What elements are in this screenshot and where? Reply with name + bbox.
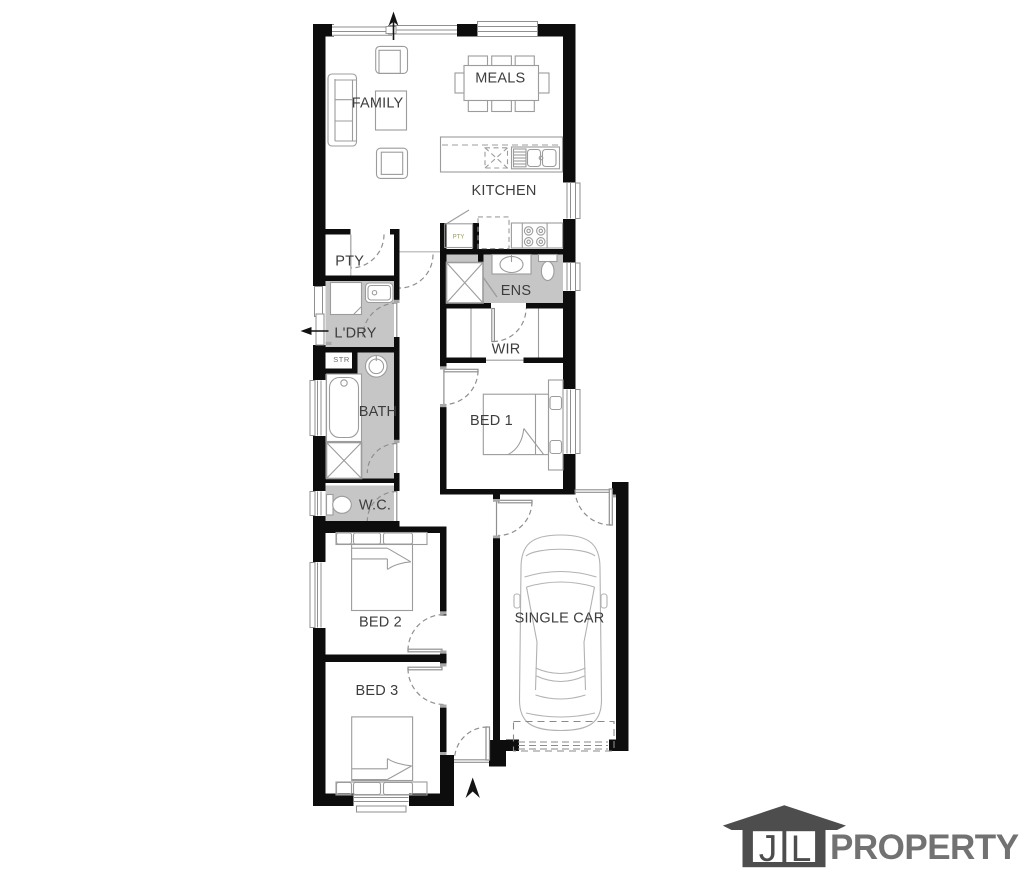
- svg-text:BATH: BATH: [359, 404, 397, 420]
- svg-text:L'DRY: L'DRY: [334, 326, 376, 342]
- svg-text:STR: STR: [333, 355, 350, 364]
- svg-text:L: L: [791, 828, 812, 869]
- svg-text:SINGLE CAR: SINGLE CAR: [515, 611, 605, 627]
- svg-text:MEALS: MEALS: [475, 71, 525, 87]
- svg-text:BED 3: BED 3: [356, 683, 399, 699]
- svg-text:KITCHEN: KITCHEN: [471, 183, 536, 199]
- svg-text:ENS: ENS: [501, 283, 531, 299]
- svg-text:W.C.: W.C.: [359, 498, 391, 514]
- svg-text:J: J: [759, 828, 778, 869]
- svg-text:PROPERTY: PROPERTY: [830, 828, 1019, 867]
- svg-text:PTY: PTY: [335, 254, 364, 270]
- svg-text:BED 2: BED 2: [359, 615, 402, 631]
- svg-text:PTY: PTY: [453, 235, 465, 241]
- svg-text:WIR: WIR: [492, 342, 521, 358]
- svg-text:FAMILY: FAMILY: [352, 96, 404, 112]
- svg-text:BED 1: BED 1: [470, 413, 513, 429]
